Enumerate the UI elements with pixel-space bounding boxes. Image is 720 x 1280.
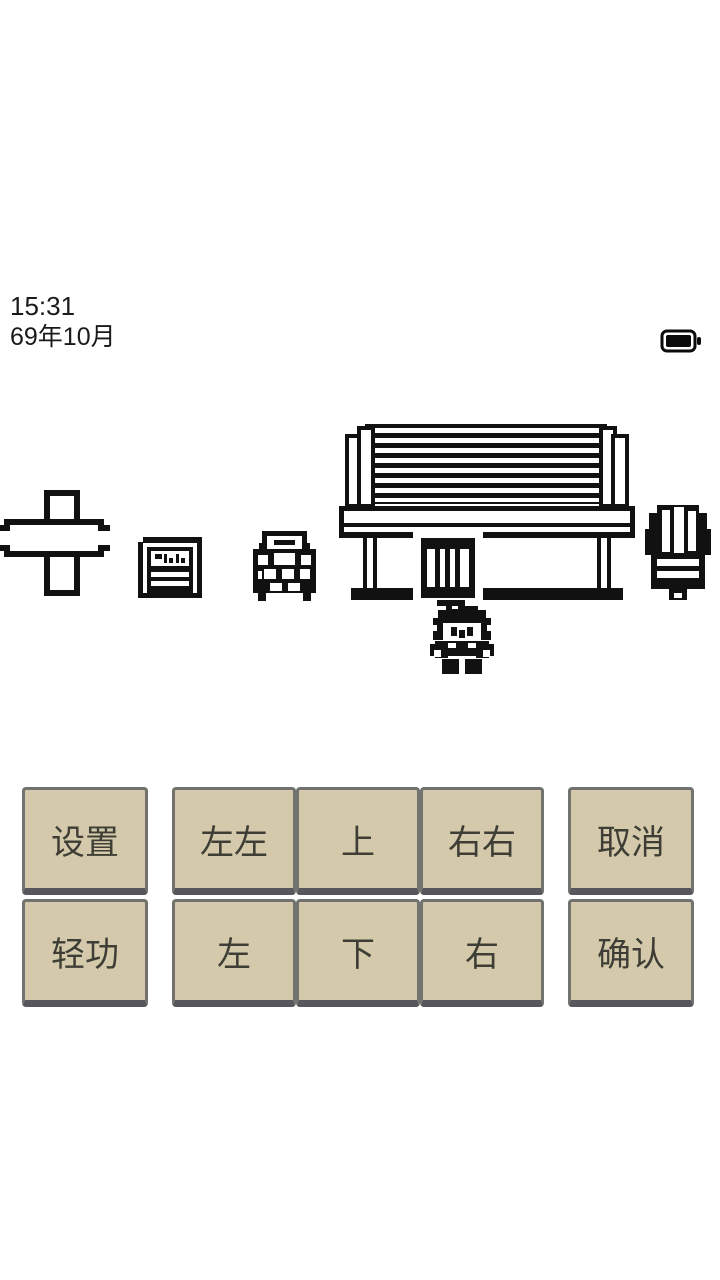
bush-sprite: [249, 527, 320, 607]
signpost-sprite: [0, 488, 110, 598]
right-button-column: 取消 确认: [568, 787, 694, 1007]
tree-sprite: [645, 505, 711, 600]
move-left-button[interactable]: 左: [172, 899, 296, 1007]
confirm-button[interactable]: 确认: [568, 899, 694, 1007]
lightfoot-button[interactable]: 轻功: [22, 899, 148, 1007]
game-screen: 15:31 69年10月: [0, 0, 720, 1280]
settings-button[interactable]: 设置: [22, 787, 148, 895]
move-right-double-button[interactable]: 右右: [420, 787, 544, 895]
control-pad: 设置 轻功 左左 上 右右 左 下 右 取消 确认: [22, 787, 698, 1007]
move-up-button[interactable]: 上: [296, 787, 420, 895]
notice-board-sprite: [136, 536, 206, 600]
move-down-button[interactable]: 下: [296, 899, 420, 1007]
clock-text: 15:31: [10, 290, 116, 322]
direction-pad: 左左 上 右右 左 下 右: [172, 787, 544, 1007]
status-block: 15:31 69年10月: [10, 290, 116, 353]
move-left-double-button[interactable]: 左左: [172, 787, 296, 895]
player-sprite: [430, 606, 494, 678]
cancel-button[interactable]: 取消: [568, 787, 694, 895]
move-right-button[interactable]: 右: [420, 899, 544, 1007]
battery-full-icon: [660, 329, 702, 353]
left-button-column: 设置 轻功: [22, 787, 148, 1007]
house-sprite: [339, 422, 635, 607]
game-date-text: 69年10月: [10, 322, 116, 353]
